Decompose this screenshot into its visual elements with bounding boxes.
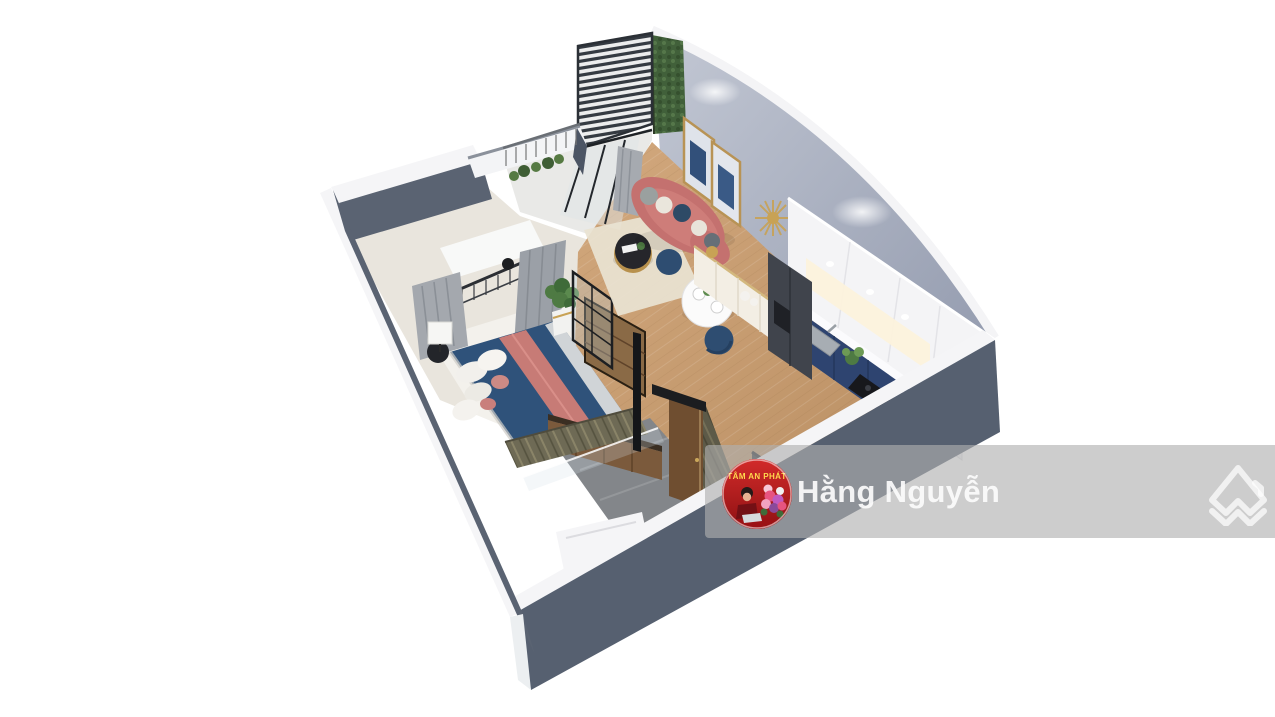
sunburst-mirror [755,200,791,236]
house-chevron-logo-icon [1206,462,1270,526]
accent-pillow [480,398,496,410]
accent-pillow [491,375,509,389]
curtain-rod-end [502,258,514,270]
sofa-pillow [640,187,658,205]
watermark-name: Hằng Nguyễn [797,474,1000,510]
gold-bowl [706,246,718,258]
ceiling-light-glow [689,78,741,106]
ceiling-light-glow [832,196,892,228]
decor-vase [750,298,758,306]
sofa-pillow [656,197,673,214]
hall-frame-post [633,332,641,452]
sofa-pillow [673,204,691,222]
agent-avatar: TÂM AN PHÁT [722,459,792,529]
dining-chair [656,249,682,275]
decor-vase [740,291,750,301]
avatar-banner-text: TÂM AN PHÁT [727,472,786,481]
listing-image: TÂM AN PHÁT Hằng Nguyễn [0,0,1275,717]
avatar-person-face [743,493,751,501]
floor-plan-render [0,0,1275,717]
sofa-pillow [691,220,707,236]
vertical-garden-wall [652,35,686,134]
bathroom-door [669,393,703,508]
